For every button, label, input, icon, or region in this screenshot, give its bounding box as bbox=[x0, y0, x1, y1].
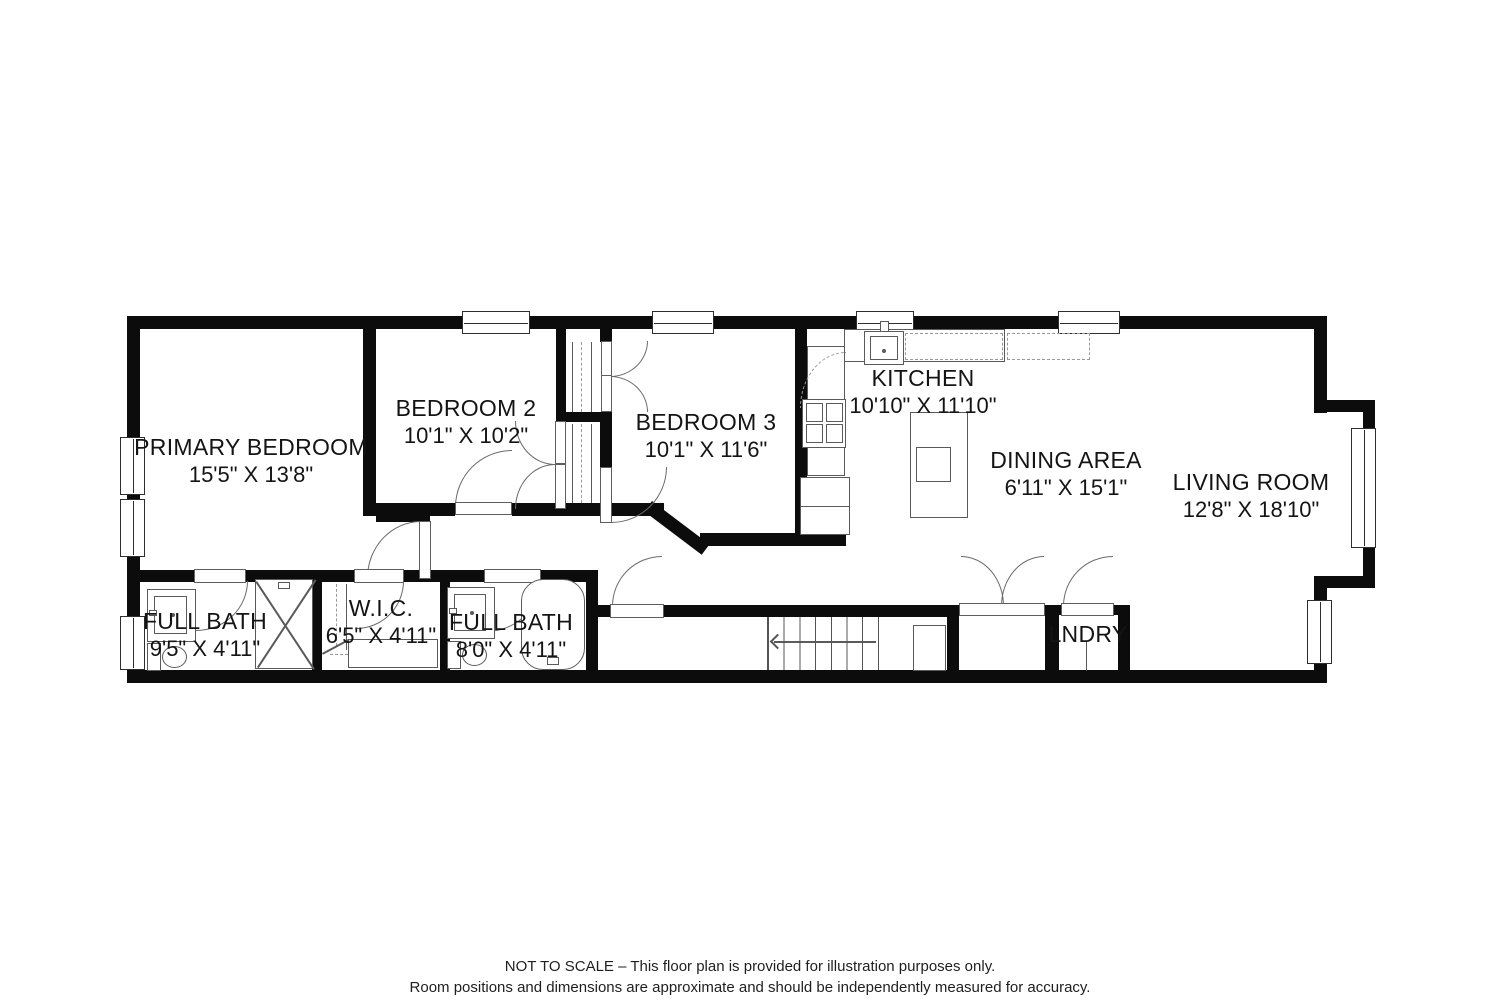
upper-cabinets-dashed bbox=[905, 333, 1003, 360]
closet-door-leaf bbox=[555, 421, 566, 464]
closet-shelf-line bbox=[572, 342, 573, 412]
door-swing-arc bbox=[1063, 556, 1113, 606]
room-name: BEDROOM 3 bbox=[616, 408, 796, 436]
door-leaf bbox=[194, 569, 246, 583]
room-name: FULL BATH bbox=[120, 607, 290, 635]
wall-segment bbox=[140, 570, 195, 582]
sink-drain-dot bbox=[882, 349, 886, 353]
room-dimensions: 8'0" X 4'11" bbox=[426, 636, 596, 664]
room-name: LNDRY bbox=[1028, 620, 1148, 648]
closet-door-swing-arc bbox=[610, 341, 648, 377]
closet-shelf-line bbox=[572, 424, 573, 503]
room-label-bedroom-2: BEDROOM 2 10'1" X 10'2" bbox=[376, 394, 556, 450]
room-label-full-bath-2: FULL BATH 8'0" X 4'11" bbox=[426, 608, 596, 664]
under-stair-cabinet bbox=[913, 625, 946, 671]
wall-segment bbox=[127, 670, 1327, 683]
window bbox=[462, 311, 530, 334]
stove-burner bbox=[826, 424, 843, 443]
island-sink bbox=[916, 447, 951, 482]
closet-door-swing-arc bbox=[515, 464, 555, 509]
floor-plan: PRIMARY BEDROOM 15'5" X 13'8" BEDROOM 2 … bbox=[0, 0, 1500, 1000]
stair-direction-arrow-shaft bbox=[774, 641, 876, 643]
room-label-kitchen: KITCHEN 10'10" X 11'10" bbox=[823, 364, 1023, 420]
closet-door-leaf bbox=[601, 341, 612, 377]
closet-rod-dashed bbox=[581, 342, 582, 412]
room-name: BEDROOM 2 bbox=[376, 394, 556, 422]
closet-door-leaf bbox=[959, 603, 1045, 616]
door-leaf bbox=[455, 502, 512, 515]
upper-cabinets-dashed bbox=[1007, 333, 1090, 360]
closet-door-swing-arc bbox=[1001, 556, 1044, 606]
window bbox=[1307, 600, 1332, 664]
disclaimer-line-2: Room positions and dimensions are approx… bbox=[0, 977, 1500, 998]
room-dimensions: 10'1" X 11'6" bbox=[616, 436, 796, 464]
shower-head-icon bbox=[278, 582, 290, 589]
closet-shelf-line bbox=[591, 342, 592, 412]
closet-door-leaf bbox=[601, 375, 612, 412]
window bbox=[652, 311, 714, 334]
wall-segment bbox=[1314, 316, 1327, 413]
door-leaf bbox=[419, 521, 431, 579]
room-name: LIVING ROOM bbox=[1151, 468, 1351, 496]
room-label-dining-area: DINING AREA 6'11" X 15'1" bbox=[966, 446, 1166, 502]
room-label-laundry: LNDRY bbox=[1028, 620, 1148, 648]
door-leaf bbox=[354, 569, 404, 583]
room-dimensions: 6'11" X 15'1" bbox=[966, 474, 1166, 502]
wall-segment bbox=[127, 316, 1327, 329]
door-swing-arc bbox=[612, 556, 662, 606]
door-leaf bbox=[600, 467, 612, 523]
room-dimensions: 15'5" X 13'8" bbox=[128, 461, 374, 489]
wall-segment bbox=[600, 316, 612, 342]
window bbox=[1351, 428, 1376, 548]
kitchen-sink-basin bbox=[870, 336, 898, 360]
door-leaf bbox=[1061, 603, 1114, 616]
room-label-bedroom-3: BEDROOM 3 10'1" X 11'6" bbox=[616, 408, 796, 464]
room-name: FULL BATH bbox=[426, 608, 596, 636]
wall-segment-diagonal bbox=[644, 501, 709, 555]
room-name: PRIMARY BEDROOM bbox=[128, 433, 374, 461]
room-label-primary-bedroom: PRIMARY BEDROOM 15'5" X 13'8" bbox=[128, 433, 374, 489]
room-dimensions: 10'10" X 11'10" bbox=[823, 392, 1023, 420]
wall-segment bbox=[947, 605, 959, 683]
window bbox=[120, 499, 145, 557]
faucet-icon bbox=[880, 321, 889, 332]
wall-segment bbox=[662, 605, 947, 617]
closet-shelf-line bbox=[591, 424, 592, 503]
room-dimensions: 9'5" X 4'11" bbox=[120, 635, 290, 663]
closet-rod-dashed bbox=[581, 424, 582, 503]
refrigerator-divider bbox=[801, 506, 849, 507]
room-label-full-bath-1: FULL BATH 9'5" X 4'11" bbox=[120, 607, 290, 663]
room-label-living-room: LIVING ROOM 12'8" X 18'10" bbox=[1151, 468, 1351, 524]
disclaimer-line-1: NOT TO SCALE – This floor plan is provid… bbox=[0, 956, 1500, 977]
door-leaf bbox=[610, 604, 664, 618]
closet-door-swing-arc bbox=[961, 556, 1004, 606]
closet-door-swing-arc bbox=[610, 376, 648, 412]
room-name: KITCHEN bbox=[823, 364, 1023, 392]
stove-burner bbox=[806, 403, 823, 422]
stove-burner bbox=[806, 424, 823, 443]
closet-door-leaf bbox=[555, 464, 566, 509]
door-swing-arc bbox=[455, 450, 512, 507]
room-dimensions: 12'8" X 18'10" bbox=[1151, 496, 1351, 524]
wall-segment bbox=[556, 316, 566, 422]
window bbox=[1058, 311, 1120, 334]
stairs bbox=[767, 617, 879, 670]
room-dimensions: 10'1" X 10'2" bbox=[376, 422, 556, 450]
room-name: DINING AREA bbox=[966, 446, 1166, 474]
